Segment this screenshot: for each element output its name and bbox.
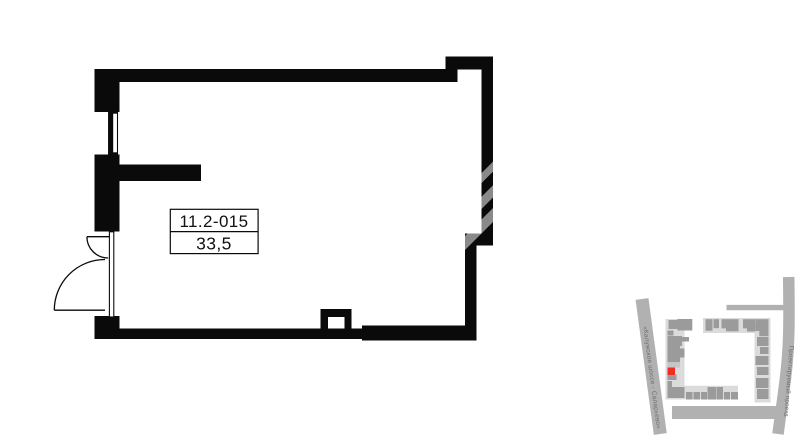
svg-text:33,5: 33,5 — [196, 233, 232, 253]
svg-text:11.2-015: 11.2-015 — [179, 212, 248, 231]
